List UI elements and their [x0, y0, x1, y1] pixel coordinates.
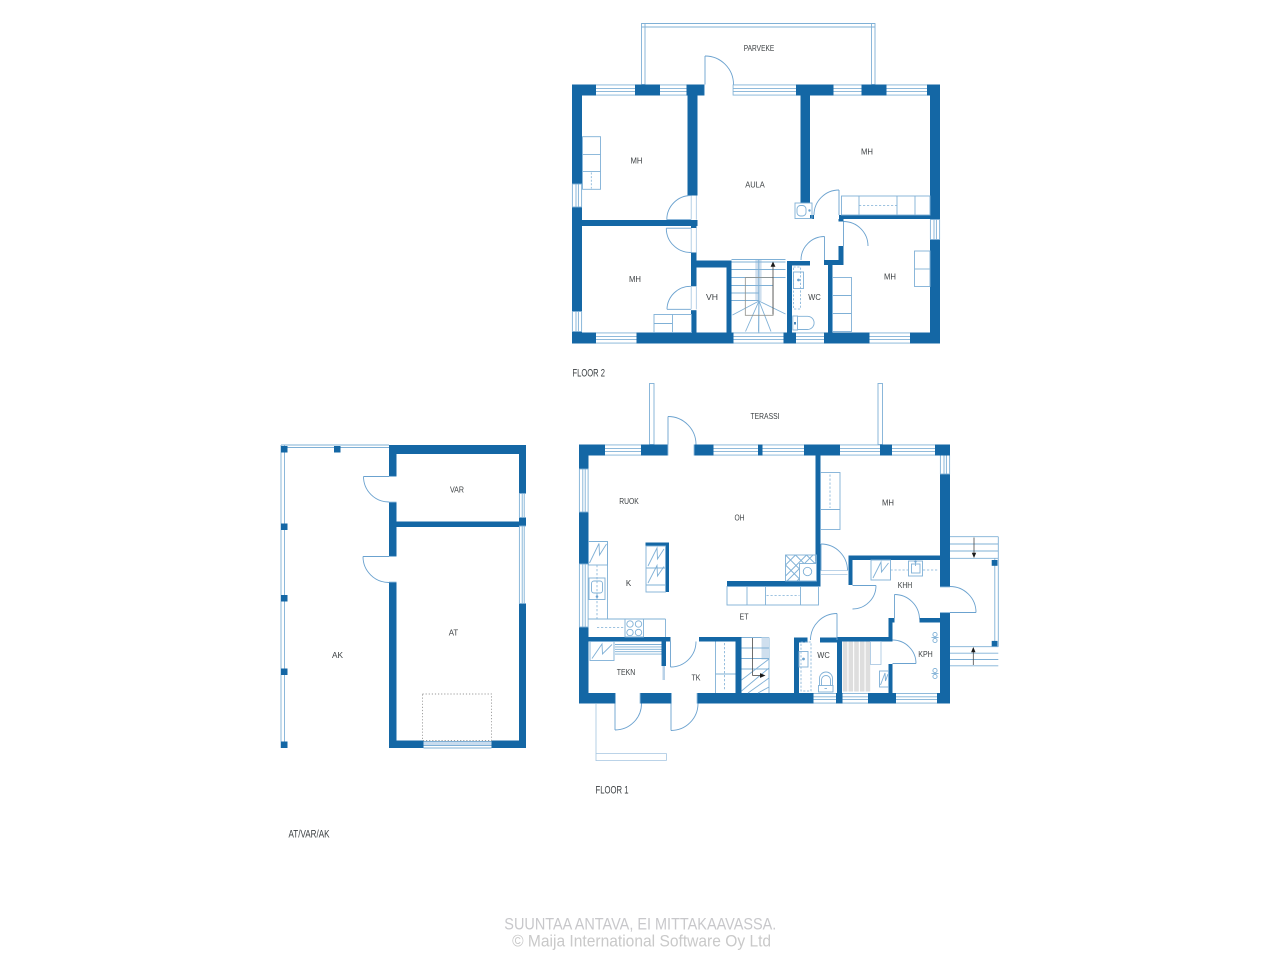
svg-text:FLOOR 1: FLOOR 1 — [596, 785, 629, 797]
svg-text:MH: MH — [861, 148, 873, 157]
svg-text:VH: VH — [706, 293, 718, 302]
svg-text:WC: WC — [817, 651, 830, 660]
svg-text:RUOK: RUOK — [619, 497, 639, 506]
svg-text:TK: TK — [692, 673, 702, 682]
svg-text:KPH: KPH — [918, 650, 933, 659]
svg-text:VAR: VAR — [450, 485, 464, 494]
svg-text:© Maija International Software: © Maija International Software Oy Ltd — [512, 933, 771, 951]
svg-text:AULA: AULA — [745, 181, 765, 190]
svg-text:AK: AK — [332, 651, 344, 660]
svg-text:WC: WC — [808, 293, 821, 302]
svg-text:MH: MH — [631, 156, 643, 165]
svg-text:SUUNTAA ANTAVA, EI MITTAKAAVAS: SUUNTAA ANTAVA, EI MITTAKAAVASSA. — [504, 916, 776, 934]
svg-text:MH: MH — [629, 275, 641, 284]
svg-text:TERASSI: TERASSI — [751, 412, 780, 421]
svg-text:MH: MH — [884, 273, 896, 282]
svg-text:OH: OH — [735, 514, 745, 523]
svg-text:ET: ET — [740, 613, 749, 622]
svg-text:AT: AT — [449, 629, 459, 638]
svg-text:PARVEKE: PARVEKE — [744, 44, 775, 53]
svg-text:TEKN: TEKN — [617, 668, 636, 677]
svg-text:FLOOR 2: FLOOR 2 — [573, 367, 606, 379]
svg-text:K: K — [626, 579, 632, 588]
svg-text:MH: MH — [882, 499, 894, 508]
svg-text:AT/VAR/AK: AT/VAR/AK — [289, 829, 330, 841]
svg-text:KHH: KHH — [898, 581, 913, 590]
